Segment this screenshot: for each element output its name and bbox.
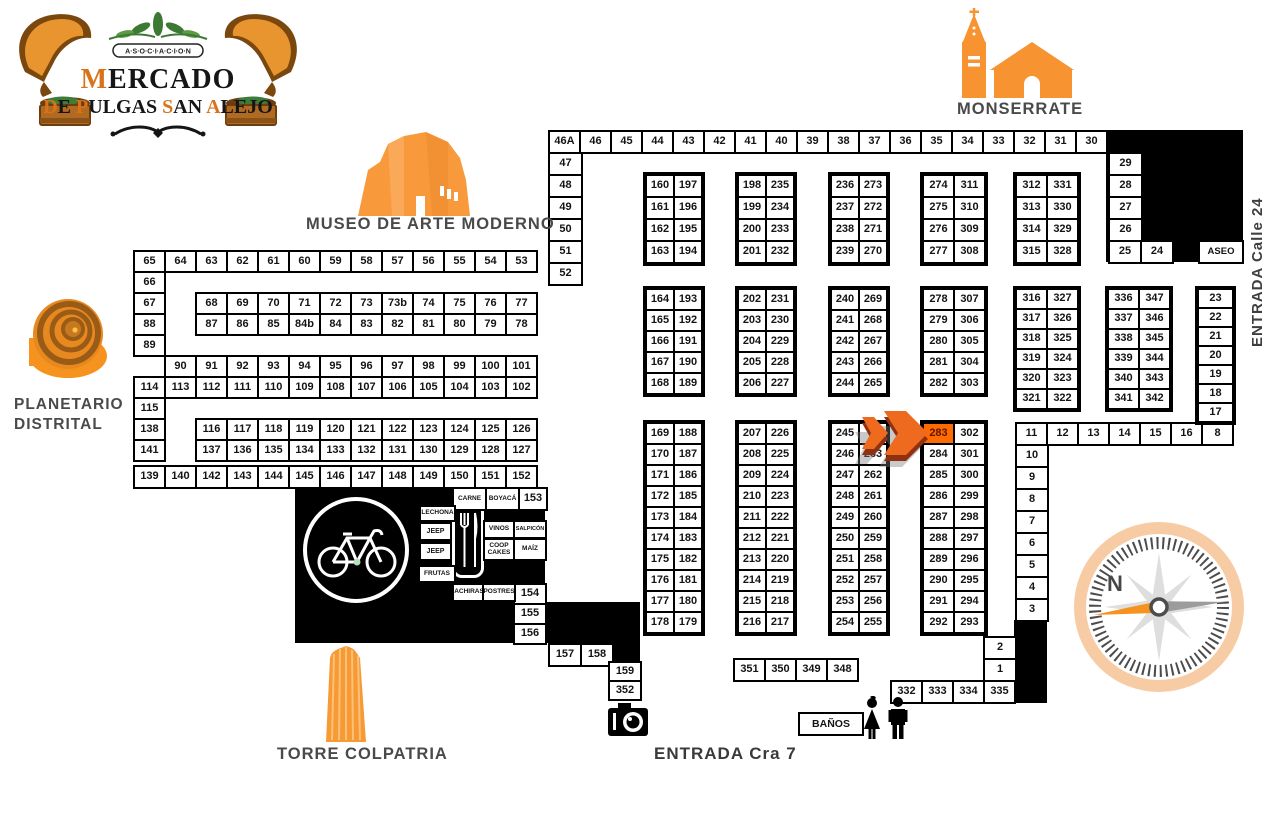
stall-136: 136 bbox=[226, 439, 259, 462]
stall-352: 352 bbox=[608, 680, 642, 701]
stall-249: 249 bbox=[830, 506, 860, 529]
planetario-label: PLANETARIODISTRITAL bbox=[14, 395, 124, 435]
stall-34: 34 bbox=[951, 130, 984, 154]
stall-286: 286 bbox=[922, 485, 955, 508]
stall-135: 135 bbox=[257, 439, 290, 462]
stall-333: 333 bbox=[921, 680, 954, 704]
stall-46a: 46A bbox=[548, 130, 581, 154]
stall-242: 242 bbox=[830, 330, 860, 353]
stall-112: 112 bbox=[195, 376, 228, 399]
stall-247: 247 bbox=[830, 464, 860, 487]
stall-45: 45 bbox=[610, 130, 643, 154]
stall-234: 234 bbox=[765, 196, 795, 220]
stall-301: 301 bbox=[953, 443, 986, 466]
stall-30: 30 bbox=[1075, 130, 1108, 154]
stall-147: 147 bbox=[350, 465, 383, 489]
stall-276: 276 bbox=[922, 218, 955, 242]
stall-308: 308 bbox=[953, 240, 986, 264]
stall-46: 46 bbox=[579, 130, 612, 154]
stall-67: 67 bbox=[133, 292, 166, 315]
stall-240: 240 bbox=[830, 288, 860, 311]
stall-42: 42 bbox=[703, 130, 736, 154]
stall-97: 97 bbox=[381, 355, 414, 378]
stall-338: 338 bbox=[1107, 328, 1140, 350]
stall-207: 207 bbox=[737, 422, 767, 445]
stall-144: 144 bbox=[257, 465, 290, 489]
stall-291: 291 bbox=[922, 590, 955, 613]
stall-326: 326 bbox=[1046, 308, 1079, 330]
stall-262: 262 bbox=[858, 464, 888, 487]
stall-71: 71 bbox=[288, 292, 321, 315]
stall-347: 347 bbox=[1138, 288, 1171, 310]
stall-257: 257 bbox=[858, 569, 888, 592]
stall-36: 36 bbox=[889, 130, 922, 154]
stall-40: 40 bbox=[765, 130, 798, 154]
stall-48: 48 bbox=[548, 174, 583, 198]
stall-38: 38 bbox=[827, 130, 860, 154]
vendor-postres: POSTRES bbox=[482, 583, 516, 602]
planetario-icon bbox=[16, 292, 116, 392]
stall-296: 296 bbox=[953, 548, 986, 571]
stall-199: 199 bbox=[737, 196, 767, 220]
stall-212: 212 bbox=[737, 527, 767, 550]
stall-121: 121 bbox=[350, 418, 383, 441]
stall-118: 118 bbox=[257, 418, 290, 441]
stall-20: 20 bbox=[1197, 345, 1234, 366]
stall-306: 306 bbox=[953, 309, 986, 332]
stall-110: 110 bbox=[257, 376, 290, 399]
stall-351: 351 bbox=[733, 658, 766, 682]
stall-87: 87 bbox=[195, 313, 228, 336]
stall-206: 206 bbox=[737, 372, 767, 395]
stall-122: 122 bbox=[381, 418, 414, 441]
stall-169: 169 bbox=[645, 422, 675, 445]
stall-23: 23 bbox=[1197, 288, 1234, 309]
stall-32: 32 bbox=[1013, 130, 1046, 154]
stall-35: 35 bbox=[920, 130, 953, 154]
stall-256: 256 bbox=[858, 590, 888, 613]
stall-75: 75 bbox=[443, 292, 476, 315]
entrada-calle24-label: ENTRADA Calle 24 bbox=[1249, 197, 1266, 347]
stall-191: 191 bbox=[673, 330, 703, 353]
stall-311: 311 bbox=[953, 174, 986, 198]
stall-178: 178 bbox=[645, 611, 675, 634]
utensils-sign bbox=[452, 502, 484, 578]
torre-colpatria-label: TORRE COLPATRIA bbox=[277, 745, 448, 764]
stall-305: 305 bbox=[953, 330, 986, 353]
stall-182: 182 bbox=[673, 548, 703, 571]
stall-13: 13 bbox=[1077, 422, 1110, 446]
stall-295: 295 bbox=[953, 569, 986, 592]
stall-342: 342 bbox=[1138, 388, 1171, 410]
stall-166: 166 bbox=[645, 330, 675, 353]
stall-289: 289 bbox=[922, 548, 955, 571]
stall-80: 80 bbox=[443, 313, 476, 336]
stall-297: 297 bbox=[953, 527, 986, 550]
stall-273: 273 bbox=[858, 174, 888, 198]
stall-106: 106 bbox=[381, 376, 414, 399]
stall-150: 150 bbox=[443, 465, 476, 489]
stall-188: 188 bbox=[673, 422, 703, 445]
stall-29: 29 bbox=[1108, 152, 1143, 176]
stall-1: 1 bbox=[983, 658, 1017, 682]
stall-96: 96 bbox=[350, 355, 383, 378]
stall-143: 143 bbox=[226, 465, 259, 489]
stall-277: 277 bbox=[922, 240, 955, 264]
stall-141: 141 bbox=[133, 439, 166, 462]
stall-16: 16 bbox=[1170, 422, 1203, 446]
stall-62: 62 bbox=[226, 250, 259, 273]
stall-26: 26 bbox=[1108, 218, 1143, 242]
stall-142: 142 bbox=[195, 465, 228, 489]
utensils-icon bbox=[455, 505, 481, 575]
stall-160: 160 bbox=[645, 174, 675, 198]
flourish-icon bbox=[111, 127, 206, 138]
stall-294: 294 bbox=[953, 590, 986, 613]
stall-19: 19 bbox=[1197, 364, 1234, 385]
stall-140: 140 bbox=[164, 465, 197, 489]
stall-113: 113 bbox=[164, 376, 197, 399]
stall-152: 152 bbox=[505, 465, 538, 489]
stall-81: 81 bbox=[412, 313, 445, 336]
stall-230: 230 bbox=[765, 309, 795, 332]
stall-128: 128 bbox=[474, 439, 507, 462]
stall-68: 68 bbox=[195, 292, 228, 315]
stall-164: 164 bbox=[645, 288, 675, 311]
vendor-carne: CARNE bbox=[452, 487, 487, 511]
stall-39: 39 bbox=[796, 130, 829, 154]
stall-99: 99 bbox=[443, 355, 476, 378]
vendor-boyacá: BOYACÁ bbox=[485, 487, 520, 511]
stall-116: 116 bbox=[195, 418, 228, 441]
stall-187: 187 bbox=[673, 443, 703, 466]
stall-79: 79 bbox=[474, 313, 507, 336]
stall-47: 47 bbox=[548, 152, 583, 176]
stall-101: 101 bbox=[505, 355, 538, 378]
stall-335: 335 bbox=[983, 680, 1016, 704]
stall-120: 120 bbox=[319, 418, 352, 441]
stall-105: 105 bbox=[412, 376, 445, 399]
stall-55: 55 bbox=[443, 250, 476, 273]
stall-130: 130 bbox=[412, 439, 445, 462]
stall-123: 123 bbox=[412, 418, 445, 441]
stall-310: 310 bbox=[953, 196, 986, 220]
stall-229: 229 bbox=[765, 330, 795, 353]
stall-201: 201 bbox=[737, 240, 767, 264]
stall-151: 151 bbox=[474, 465, 507, 489]
stall-304: 304 bbox=[953, 351, 986, 374]
stall-33: 33 bbox=[982, 130, 1015, 154]
entrada-cra7-label: ENTRADA Cra 7 bbox=[654, 744, 797, 764]
stall-9: 9 bbox=[1015, 466, 1049, 490]
stall-184: 184 bbox=[673, 506, 703, 529]
stall-255: 255 bbox=[858, 611, 888, 634]
stall-211: 211 bbox=[737, 506, 767, 529]
stall-88: 88 bbox=[133, 313, 166, 336]
stall-274: 274 bbox=[922, 174, 955, 198]
stall-177: 177 bbox=[645, 590, 675, 613]
stall-57: 57 bbox=[381, 250, 414, 273]
stall-254: 254 bbox=[830, 611, 860, 634]
stall-18: 18 bbox=[1197, 383, 1234, 404]
stall-309: 309 bbox=[953, 218, 986, 242]
stall-321: 321 bbox=[1015, 388, 1048, 410]
vendor-vinos: VINOS bbox=[483, 520, 515, 539]
bicycle-icon bbox=[300, 494, 412, 606]
stall-129: 129 bbox=[443, 439, 476, 462]
stall-232: 232 bbox=[765, 240, 795, 264]
stall-346: 346 bbox=[1138, 308, 1171, 330]
stall-84b: 84b bbox=[288, 313, 321, 336]
stall-14: 14 bbox=[1108, 422, 1141, 446]
stall-17: 17 bbox=[1197, 402, 1234, 423]
stall-205: 205 bbox=[737, 351, 767, 374]
stall-8: 8 bbox=[1015, 488, 1049, 512]
stall-208: 208 bbox=[737, 443, 767, 466]
stall-269: 269 bbox=[858, 288, 888, 311]
stall-78: 78 bbox=[505, 313, 538, 336]
stall-278: 278 bbox=[922, 288, 955, 311]
stall-193: 193 bbox=[673, 288, 703, 311]
stall-287: 287 bbox=[922, 506, 955, 529]
stall-115: 115 bbox=[133, 397, 166, 420]
stall-154: 154 bbox=[513, 583, 547, 605]
stall-307: 307 bbox=[953, 288, 986, 311]
stall-196: 196 bbox=[673, 196, 703, 220]
stall-138: 138 bbox=[133, 418, 166, 441]
restroom-icons bbox=[860, 696, 914, 744]
stall-315: 315 bbox=[1015, 240, 1048, 264]
museo-icon bbox=[352, 128, 502, 220]
stall-12: 12 bbox=[1046, 422, 1079, 446]
north-label: N bbox=[1107, 571, 1123, 596]
stall-94: 94 bbox=[288, 355, 321, 378]
stall-313: 313 bbox=[1015, 196, 1048, 220]
stall-258: 258 bbox=[858, 548, 888, 571]
stall-119: 119 bbox=[288, 418, 321, 441]
stall-190: 190 bbox=[673, 351, 703, 374]
stall-157: 157 bbox=[548, 643, 582, 667]
stall-189: 189 bbox=[673, 372, 703, 395]
stall-214: 214 bbox=[737, 569, 767, 592]
stall-92: 92 bbox=[226, 355, 259, 378]
stall-328: 328 bbox=[1046, 240, 1079, 264]
stall-15: 15 bbox=[1139, 422, 1172, 446]
stall-253: 253 bbox=[830, 590, 860, 613]
stall-22: 22 bbox=[1197, 307, 1234, 328]
torre-colpatria-icon bbox=[318, 642, 374, 746]
stall-194: 194 bbox=[673, 240, 703, 264]
stall-2: 2 bbox=[983, 636, 1017, 660]
stall-213: 213 bbox=[737, 548, 767, 571]
stall-153: 153 bbox=[518, 487, 548, 511]
vendor-jeep: JEEP bbox=[419, 522, 452, 541]
stall-179: 179 bbox=[673, 611, 703, 634]
stall-322: 322 bbox=[1046, 388, 1079, 410]
stall-63: 63 bbox=[195, 250, 228, 273]
stall-109: 109 bbox=[288, 376, 321, 399]
logo: A·S·O·C·I·A·C·I·O·N MERCADO DE PULGAS SA… bbox=[13, 10, 303, 158]
stall-25: 25 bbox=[1108, 240, 1142, 264]
stall-69: 69 bbox=[226, 292, 259, 315]
stall-268: 268 bbox=[858, 309, 888, 332]
stall-344: 344 bbox=[1138, 348, 1171, 370]
stall-298: 298 bbox=[953, 506, 986, 529]
stall-316: 316 bbox=[1015, 288, 1048, 310]
stall-202: 202 bbox=[737, 288, 767, 311]
stall-133: 133 bbox=[319, 439, 352, 462]
stall-300: 300 bbox=[953, 464, 986, 487]
stall-251: 251 bbox=[830, 548, 860, 571]
stall-173: 173 bbox=[645, 506, 675, 529]
stall-174: 174 bbox=[645, 527, 675, 550]
stall-168: 168 bbox=[645, 372, 675, 395]
vendor-maíz: MAÍZ bbox=[513, 538, 547, 561]
stall-259: 259 bbox=[858, 527, 888, 550]
stall-172: 172 bbox=[645, 485, 675, 508]
stall-334: 334 bbox=[952, 680, 985, 704]
stall-183: 183 bbox=[673, 527, 703, 550]
stall-299: 299 bbox=[953, 485, 986, 508]
stall-337: 337 bbox=[1107, 308, 1140, 330]
stall-84: 84 bbox=[319, 313, 352, 336]
stall-180: 180 bbox=[673, 590, 703, 613]
stall-82: 82 bbox=[381, 313, 414, 336]
stall-170: 170 bbox=[645, 443, 675, 466]
black-block-food-step bbox=[295, 602, 608, 643]
stall-85: 85 bbox=[257, 313, 290, 336]
stall-243: 243 bbox=[830, 351, 860, 374]
stall-325: 325 bbox=[1046, 328, 1079, 350]
stall-134: 134 bbox=[288, 439, 321, 462]
monserrate-icon bbox=[952, 8, 1082, 100]
stall-236: 236 bbox=[830, 174, 860, 198]
stall-139: 139 bbox=[133, 465, 166, 489]
stall-238: 238 bbox=[830, 218, 860, 242]
stall-145: 145 bbox=[288, 465, 321, 489]
stall-83: 83 bbox=[350, 313, 383, 336]
stall-329: 329 bbox=[1046, 218, 1079, 242]
stall-216: 216 bbox=[737, 611, 767, 634]
vendor-jeep: JEEP bbox=[419, 542, 452, 561]
stall-10: 10 bbox=[1015, 444, 1049, 468]
stall-89: 89 bbox=[133, 334, 166, 357]
stall-285: 285 bbox=[922, 464, 955, 487]
stall-350: 350 bbox=[764, 658, 797, 682]
stall-272: 272 bbox=[858, 196, 888, 220]
stall-60: 60 bbox=[288, 250, 321, 273]
stall-132: 132 bbox=[350, 439, 383, 462]
stall-349: 349 bbox=[795, 658, 828, 682]
stall-250: 250 bbox=[830, 527, 860, 550]
stall-314: 314 bbox=[1015, 218, 1048, 242]
stall-155: 155 bbox=[513, 603, 547, 625]
stall-76: 76 bbox=[474, 292, 507, 315]
stall-53: 53 bbox=[505, 250, 538, 273]
stall-198: 198 bbox=[737, 174, 767, 198]
stall-65: 65 bbox=[133, 250, 166, 273]
stall-235: 235 bbox=[765, 174, 795, 198]
stall-54: 54 bbox=[474, 250, 507, 273]
stall-146: 146 bbox=[319, 465, 352, 489]
stall-312: 312 bbox=[1015, 174, 1048, 198]
stall-137: 137 bbox=[195, 439, 228, 462]
stall-163: 163 bbox=[645, 240, 675, 264]
stall-162: 162 bbox=[645, 218, 675, 242]
stall-66: 66 bbox=[133, 271, 166, 294]
stall-58: 58 bbox=[350, 250, 383, 273]
stall-223: 223 bbox=[765, 485, 795, 508]
stall-324: 324 bbox=[1046, 348, 1079, 370]
stall-339: 339 bbox=[1107, 348, 1140, 370]
stall-221: 221 bbox=[765, 527, 795, 550]
stall-279: 279 bbox=[922, 309, 955, 332]
stall-86: 86 bbox=[226, 313, 259, 336]
stall-320: 320 bbox=[1015, 368, 1048, 390]
stall-261: 261 bbox=[858, 485, 888, 508]
monserrate-label: MONSERRATE bbox=[957, 100, 1083, 119]
stall-73: 73 bbox=[350, 292, 383, 315]
stall-175: 175 bbox=[645, 548, 675, 571]
stall-275: 275 bbox=[922, 196, 955, 220]
stall-72: 72 bbox=[319, 292, 352, 315]
stall-24: 24 bbox=[1140, 240, 1174, 264]
stall-131: 131 bbox=[381, 439, 414, 462]
compass-icon: N bbox=[1071, 519, 1247, 695]
stall-239: 239 bbox=[830, 240, 860, 264]
stall-90: 90 bbox=[164, 355, 197, 378]
stall-348: 348 bbox=[826, 658, 859, 682]
stall-37: 37 bbox=[858, 130, 891, 154]
stall-209: 209 bbox=[737, 464, 767, 487]
stall-281: 281 bbox=[922, 351, 955, 374]
stall-44: 44 bbox=[641, 130, 674, 154]
stall-186: 186 bbox=[673, 464, 703, 487]
stall-288: 288 bbox=[922, 527, 955, 550]
stall-219: 219 bbox=[765, 569, 795, 592]
stall-125: 125 bbox=[474, 418, 507, 441]
stall-61: 61 bbox=[257, 250, 290, 273]
stall-220: 220 bbox=[765, 548, 795, 571]
stall-159: 159 bbox=[608, 661, 642, 682]
stall-228: 228 bbox=[765, 351, 795, 374]
stall-317: 317 bbox=[1015, 308, 1048, 330]
stall-104: 104 bbox=[443, 376, 476, 399]
stall-108: 108 bbox=[319, 376, 352, 399]
vendor-frutas: FRUTAS bbox=[418, 565, 456, 583]
stall-303: 303 bbox=[953, 372, 986, 395]
stall-6: 6 bbox=[1015, 532, 1049, 556]
stall-222: 222 bbox=[765, 506, 795, 529]
stall-73b: 73b bbox=[381, 292, 414, 315]
market-map: A·S·O·C·I·A·C·I·O·N MERCADO DE PULGAS SA… bbox=[0, 0, 1280, 829]
stall-31: 31 bbox=[1044, 130, 1077, 154]
arrow-marker-icon bbox=[854, 407, 930, 467]
stall-341: 341 bbox=[1107, 388, 1140, 410]
stall-271: 271 bbox=[858, 218, 888, 242]
stall-98: 98 bbox=[412, 355, 445, 378]
stall-197: 197 bbox=[673, 174, 703, 198]
stall-231: 231 bbox=[765, 288, 795, 311]
stall-124: 124 bbox=[443, 418, 476, 441]
stall-4: 4 bbox=[1015, 576, 1049, 600]
stall-290: 290 bbox=[922, 569, 955, 592]
stall-156: 156 bbox=[513, 623, 547, 645]
stall-51: 51 bbox=[548, 240, 583, 264]
leaves-icon bbox=[109, 12, 207, 39]
stall-117: 117 bbox=[226, 418, 259, 441]
stall-319: 319 bbox=[1015, 348, 1048, 370]
